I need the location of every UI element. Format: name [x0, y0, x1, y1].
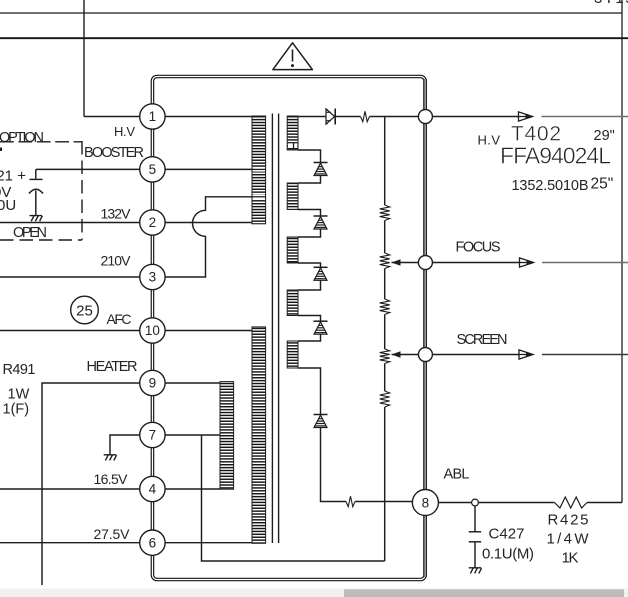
svg-text:FOCUS: FOCUS [456, 240, 501, 256]
svg-text:SCREEN: SCREEN [457, 332, 508, 348]
svg-text:R425: R425 [548, 512, 589, 529]
svg-text:BOOSTER: BOOSTER [84, 145, 144, 161]
svg-text:OPEN: OPEN [13, 225, 47, 241]
svg-text:R491: R491 [3, 362, 36, 378]
svg-text:OPTION: OPTION [0, 130, 44, 146]
svg-text:6: 6 [149, 535, 157, 550]
svg-text:8: 8 [422, 495, 430, 510]
svg-text:10: 10 [145, 323, 160, 338]
svg-text:1W: 1W [8, 387, 30, 403]
svg-text:3Y15: 3Y15 [594, 0, 628, 7]
svg-text:7: 7 [149, 428, 157, 443]
svg-text:1/4W: 1/4W [547, 531, 590, 548]
svg-text:16.5V: 16.5V [94, 471, 129, 487]
svg-text:1K: 1K [562, 550, 579, 567]
svg-text:421 +: 421 + [0, 168, 26, 185]
svg-text:1(F): 1(F) [3, 402, 30, 418]
svg-text:H.V: H.V [114, 124, 135, 139]
svg-text:0.1U(M): 0.1U(M) [482, 546, 534, 563]
svg-text:25": 25" [591, 176, 614, 193]
svg-text:132V: 132V [101, 206, 132, 222]
svg-text:27.5V: 27.5V [94, 526, 131, 542]
svg-text:210V: 210V [101, 253, 132, 269]
svg-text:0U: 0U [0, 197, 16, 214]
svg-text:1352.5010B: 1352.5010B [512, 178, 589, 194]
svg-text:9: 9 [149, 376, 157, 391]
svg-text:3: 3 [149, 270, 157, 285]
svg-text:AFC: AFC [107, 311, 132, 327]
svg-text:H.V: H.V [478, 133, 501, 148]
svg-text:2: 2 [149, 215, 157, 230]
svg-text:FFA94024L: FFA94024L [500, 143, 611, 169]
svg-text:HEATER: HEATER [87, 359, 138, 375]
svg-text:ABL: ABL [444, 467, 470, 483]
svg-text:4: 4 [149, 482, 157, 497]
svg-text:C427: C427 [489, 526, 525, 543]
svg-text:25: 25 [76, 303, 93, 320]
svg-text:1: 1 [149, 109, 157, 124]
svg-text:5: 5 [149, 162, 157, 177]
